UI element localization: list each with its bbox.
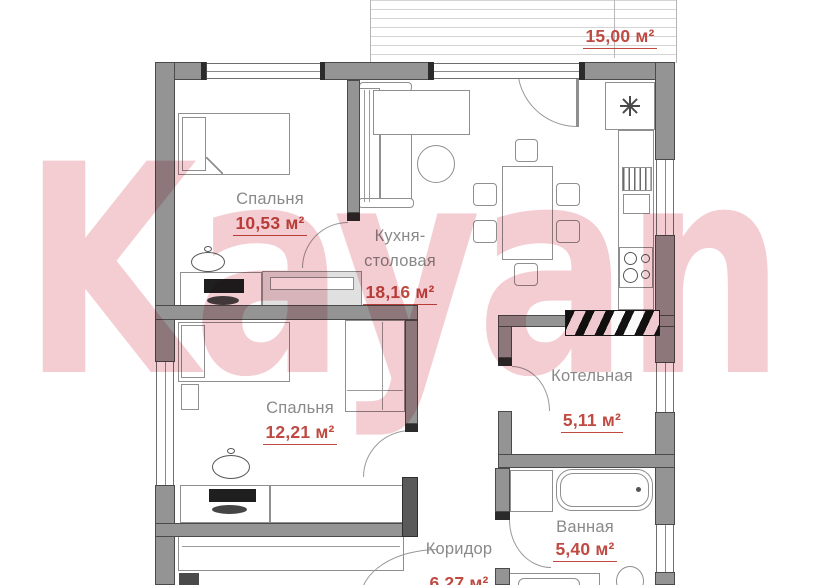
stove-burner — [641, 254, 650, 263]
dish-bedroom1 — [207, 296, 239, 305]
room-label-corridor: Коридор — [413, 537, 505, 562]
room-label-kitchen: Кухня-столовая — [352, 224, 448, 274]
stove-burner — [623, 268, 638, 283]
pot-icon — [191, 252, 225, 272]
wardrobe-closet — [178, 533, 404, 571]
chair-bottom — [514, 263, 538, 286]
door-jamb — [347, 213, 360, 221]
bathroom-cabinet — [510, 470, 553, 512]
stove-burner — [641, 270, 650, 279]
wall-top-b — [322, 62, 433, 80]
room-area-bedroom1: 10,53 м² — [215, 213, 325, 236]
keyboard-bedroom2 — [209, 489, 256, 502]
door-jamb — [495, 512, 510, 520]
window-bedroom1-top — [207, 63, 322, 79]
wall-right-a — [655, 62, 675, 160]
dish-bedroom2 — [212, 505, 247, 514]
wall-boiler-bathroom-divider — [498, 454, 675, 468]
wall-bedrooms-divider — [155, 305, 418, 320]
sofa-arm-bottom — [358, 198, 414, 208]
sofa-back-line — [364, 90, 365, 202]
chair-top — [515, 139, 538, 162]
wall-bedroom2-bottom — [155, 523, 405, 537]
vent-star-icon — [620, 96, 640, 116]
window-boiler-right — [656, 363, 674, 412]
room-area-bathroom: 5,40 м² — [533, 539, 637, 562]
pot-lid-knob — [227, 448, 235, 454]
wall-right-c — [655, 412, 675, 525]
floor-plan: 15,00 м² — [0, 0, 828, 585]
room-label-bedroom2: Спальня — [250, 396, 350, 421]
wall-right-d — [655, 572, 675, 585]
room-label-boiler: Котельная — [533, 364, 651, 389]
stove-burner — [624, 252, 637, 265]
wardrobe-divider — [382, 322, 383, 410]
bed-pillow-bedroom1 — [182, 117, 206, 171]
tv-bedroom1 — [204, 279, 244, 293]
window-bedroom2-left — [156, 362, 174, 485]
door-jamb — [428, 62, 434, 80]
wall-bedroom1-kitchen — [347, 80, 360, 213]
wall-bathroom-left-upper — [495, 468, 510, 512]
bed-fold-line — [206, 157, 223, 174]
sofa-chaise — [373, 90, 470, 135]
chair-right-1 — [556, 183, 580, 206]
room-label-bathroom: Ванная — [533, 515, 637, 540]
toilet — [616, 566, 644, 585]
wardrobe-bedroom2 — [345, 320, 405, 412]
wardrobe-closet-line — [182, 546, 400, 547]
coffee-table — [417, 145, 455, 183]
sofa-back-line — [369, 90, 370, 202]
wall-right-b — [655, 235, 675, 363]
window-terrace-door — [433, 63, 580, 79]
door-jamb — [579, 62, 585, 80]
window-bathroom-right — [656, 525, 674, 572]
door-arc-bedroom2 — [363, 430, 411, 477]
wall-boiler-left-upper — [498, 326, 512, 358]
sink-basin — [623, 194, 650, 214]
room-area-bedroom2: 12,21 м² — [250, 422, 350, 445]
cabinet-inner — [270, 277, 354, 290]
terrace-area-label: 15,00 м² — [572, 26, 668, 49]
bathtub-faucet — [636, 487, 641, 492]
pot-lid-knob — [204, 246, 212, 252]
wall-post-bedroom2-door — [402, 477, 418, 537]
room-area-corridor: 6,27 м² — [413, 573, 505, 585]
nightstand-bedroom2 — [181, 384, 199, 410]
chair-left-2 — [473, 220, 497, 243]
chair-left-1 — [473, 183, 497, 206]
door-jamb — [405, 424, 418, 432]
door-jamb — [498, 358, 512, 366]
cabinet-closet — [179, 573, 199, 585]
bed-pillow-bedroom2 — [181, 325, 205, 378]
washing-machine-inner — [518, 578, 580, 585]
dining-table — [502, 166, 553, 260]
chair-right-2 — [556, 220, 580, 243]
room-label-bedroom1: Спальня — [215, 187, 325, 212]
boiler-radiator-hatch — [565, 310, 660, 336]
desk-bedroom2-right — [270, 485, 403, 523]
window-kitchen-right — [656, 160, 674, 235]
wardrobe-shelf — [347, 390, 403, 391]
window-jamb — [201, 62, 206, 80]
sink-drainer — [622, 167, 652, 191]
wall-boiler-left-lower — [498, 411, 512, 458]
wall-bedroom2-corridor — [405, 320, 418, 424]
stove — [619, 247, 653, 288]
pot-icon — [212, 455, 250, 479]
room-area-kitchen: 18,16 м² — [352, 282, 448, 305]
room-area-boiler: 5,11 м² — [533, 410, 651, 433]
window-jamb — [320, 62, 325, 80]
